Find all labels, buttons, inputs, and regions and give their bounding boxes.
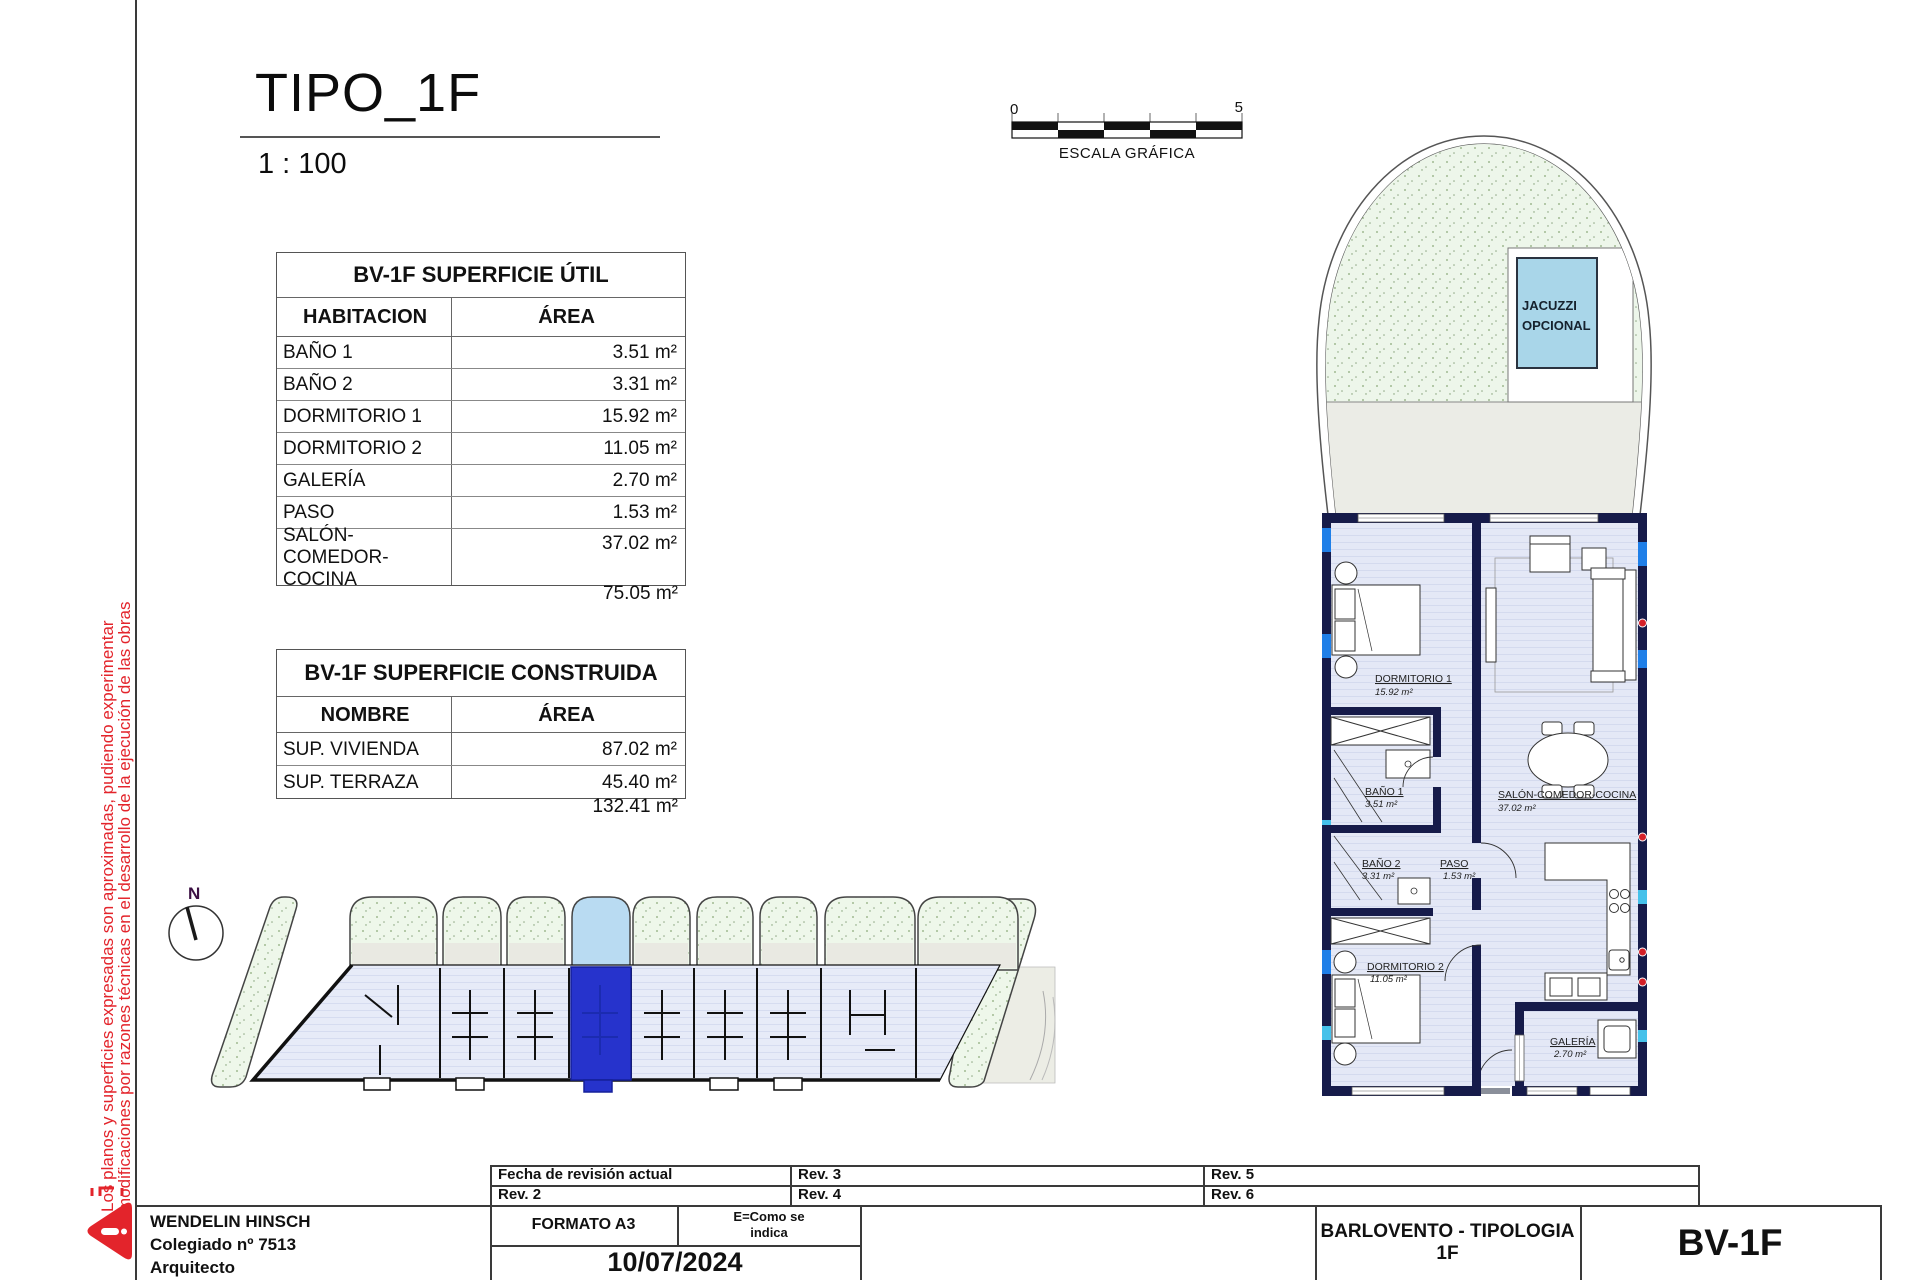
drawing-sheet: { "sheet": { "title": "TIPO_1F", "scale"… [0,0,1920,1280]
room-label: BAÑO 2 [1362,857,1401,870]
revision-4: Rev. 4 [798,1186,841,1203]
revision-2: Rev. 2 [498,1186,541,1203]
room-label: DORMITORIO 1 [1375,673,1452,685]
armchair [1530,544,1570,572]
revision-5: Rev. 5 [1211,1166,1254,1183]
escala-text: E=Como se indica [724,1209,814,1241]
table-construida-title: BV-1F SUPERFICIE CONSTRUIDA [277,650,685,697]
table-util-col1-header: HABITACION [277,298,452,336]
table-util-title: BV-1F SUPERFICIE ÚTIL [277,253,685,298]
revision-6: Rev. 6 [1211,1186,1254,1203]
side-table [1582,548,1606,570]
disclaimer-line-2: modificaciones por razones técnicas en e… [116,492,133,1212]
north-circle [169,906,223,960]
table-construida-col2-header: ÁREA [452,697,685,732]
graphic-scale-bar: 0 5 ESCALA GRÁFICA [1002,96,1252,171]
formato-label: FORMATO A3 [490,1205,677,1245]
project-title: BARLOVENTO - TIPOLOGIA 1F [1315,1205,1580,1280]
room-area-label: 15.92 m² [1375,687,1413,698]
table-row: DORMITORIO 1 15.92 m² [277,401,685,433]
architect-block: WENDELIN HINSCH Colegiado nº 7513 Arquit… [150,1210,311,1279]
architect-logo [84,1186,138,1270]
table-row: DORMITORIO 2 11.05 m² [277,433,685,465]
titleblock-vline [860,1205,862,1280]
site-highlight-unit [571,967,631,1092]
architect-title: Arquitecto [150,1256,311,1279]
fecha-value: 10/07/2024 [490,1245,860,1280]
table-row: SALÓN-COMEDOR-COCINA 37.02 m² [277,529,685,585]
room-name: DORMITORIO 2 [277,433,452,464]
table-row: GALERÍA 2.70 m² [277,465,685,497]
scale-caption: ESCALA GRÁFICA [1059,145,1195,162]
room-area: 3.51 m² [452,337,685,368]
sink [1609,950,1629,970]
room-area: 37.02 m² [452,529,685,585]
galeria-door [1515,1035,1524,1081]
jacuzzi-label-2: OPCIONAL [1522,318,1591,333]
floor-plan: JACUZZI OPCIONAL [1290,130,1680,1110]
room-area-label: 37.02 m² [1498,803,1536,814]
revision-table-mid-line [490,1185,1698,1187]
north-label: N [188,885,200,903]
room-name: SALÓN-COMEDOR-COCINA [277,529,452,585]
sheet-left-border [135,0,137,1280]
logo-dash [101,1228,119,1235]
room-name: PASO [277,497,452,528]
revision-fecha-actual: Fecha de revisión actual [498,1166,672,1183]
titleblock-vline [790,1165,792,1205]
sheet-code: BV-1F [1580,1205,1880,1280]
site-lobe-gray-band [352,943,1016,968]
scale-start-label: 0 [1010,101,1018,118]
room-area-label: 3.31 m² [1362,871,1395,882]
sheet-title: TIPO_1F [255,62,481,124]
architect-name: WENDELIN HINSCH [150,1210,311,1233]
table-superficie-construida: BV-1F SUPERFICIE CONSTRUIDA NOMBRE ÁREA … [276,649,686,799]
table-construida-header: NOMBRE ÁREA [277,697,685,733]
surface-name: SUP. VIVIENDA [277,733,452,765]
north-arrow: N [169,885,223,960]
architect-number: Colegiado nº 7513 [150,1233,311,1256]
room-area-label: 3.51 m² [1365,799,1398,810]
room-name: GALERÍA [277,465,452,496]
surface-name: SUP. TERRAZA [277,766,452,798]
room-label: SALÓN-COMEDOR-COCINA [1498,788,1636,801]
disclaimer-line-1: Los planos y superficies expresadas son … [99,492,116,1212]
table-row: SUP. VIVIENDA 87.02 m² [277,733,685,766]
room-label: BAÑO 1 [1365,785,1404,798]
room-area-label: 1.53 m² [1443,871,1476,882]
room-area: 15.92 m² [452,401,685,432]
titleblock-vline [677,1205,679,1245]
room-label: GALERÍA [1550,1035,1596,1048]
revision-3: Rev. 3 [798,1166,841,1183]
table-row: BAÑO 2 3.31 m² [277,369,685,401]
table-util-total: 75.05 m² [276,583,686,605]
room-area: 2.70 m² [452,465,685,496]
apartment: DORMITORIO 1 15.92 m² BAÑO 1 3.51 m² BAÑ… [1322,513,1647,1096]
room-area-label: 2.70 m² [1553,1049,1587,1060]
room-area: 11.05 m² [452,433,685,464]
table-construida-col1-header: NOMBRE [277,697,452,732]
scale-ticks [1012,113,1242,122]
jacuzzi [1517,258,1597,368]
table-row: BAÑO 1 3.51 m² [277,337,685,369]
titleblock-vline [1203,1165,1205,1205]
room-area-label: 11.05 m² [1370,974,1408,985]
site-highlight-terrace [572,897,630,970]
surface-area: 45.40 m² [452,766,685,798]
roof-terrace: JACUZZI OPCIONAL [1290,130,1680,515]
title-underline [240,136,660,138]
scale-checkerboard [1012,122,1242,138]
room-name: BAÑO 2 [277,369,452,400]
table-row: SUP. TERRAZA 45.40 m² [277,766,685,798]
table-superficie-util: BV-1F SUPERFICIE ÚTIL HABITACION ÁREA BA… [276,252,686,586]
room-name: BAÑO 1 [277,337,452,368]
titleblock-vline [1698,1165,1700,1205]
washer [1598,1020,1636,1058]
table-util-header: HABITACION ÁREA [277,298,685,337]
sheet-scale: 1 : 100 [258,148,347,181]
room-label: DORMITORIO 2 [1367,961,1444,973]
logo-top-marks [92,1188,122,1196]
surface-area: 87.02 m² [452,733,685,765]
room-label: PASO [1440,858,1468,870]
room-name: DORMITORIO 1 [277,401,452,432]
table-construida-total: 132.41 m² [276,796,686,818]
escala-label: E=Como se indica [690,1205,848,1245]
disclaimer-text: Los planos y superficies expresadas son … [99,492,133,1212]
room-area: 3.31 m² [452,369,685,400]
table-util-col2-header: ÁREA [452,298,685,336]
sofa [1591,568,1636,682]
terrace-floor [1290,402,1680,515]
tv-unit [1486,588,1496,662]
jacuzzi-label-1: JACUZZI [1522,298,1577,313]
site-plan: N [150,885,1080,1100]
logo-dot [121,1229,127,1235]
room-area: 1.53 m² [452,497,685,528]
titleblock-vline [1880,1205,1882,1280]
